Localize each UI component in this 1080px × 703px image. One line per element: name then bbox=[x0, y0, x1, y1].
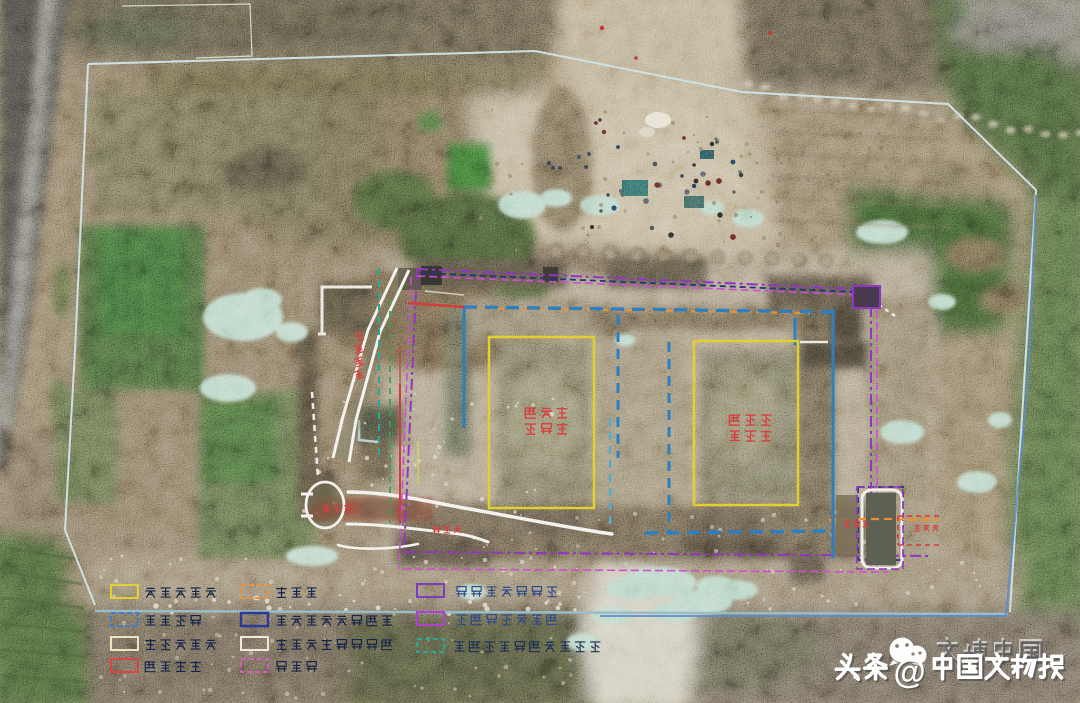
svg-text:@: @ bbox=[894, 653, 926, 690]
